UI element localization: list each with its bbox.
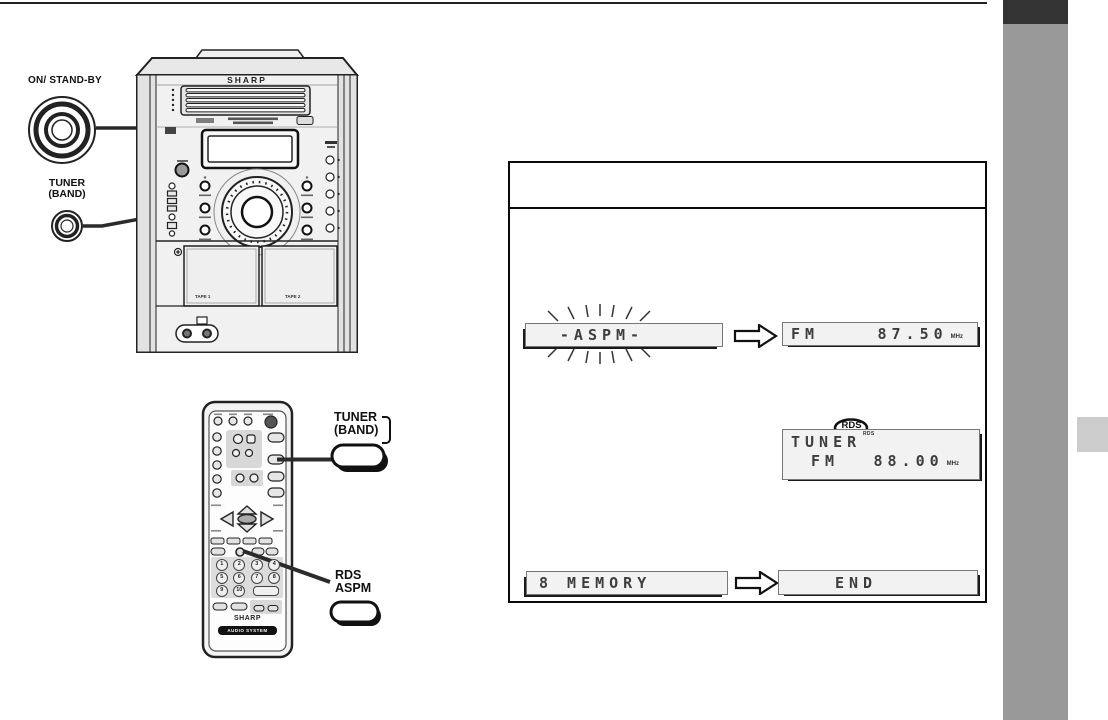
keypad-key: 6 — [233, 572, 245, 584]
keypad-key: 5 — [216, 572, 228, 584]
fm-band-text: FM — [791, 325, 819, 343]
jog-dial — [214, 169, 300, 255]
keypad-key: 9 — [216, 585, 228, 597]
instruction-box — [508, 161, 987, 603]
fm-unit-text: MHz — [951, 334, 963, 340]
instruction-box-divider — [508, 207, 987, 209]
remote-tuner-band-pill — [332, 445, 388, 472]
display-fm-start: FM 87.50 MHz — [782, 322, 978, 346]
keypad-key: 1 — [216, 559, 228, 571]
keypad-key: 10 — [233, 585, 245, 597]
display-end: END — [778, 570, 978, 595]
aspm-text: -ASPM- — [560, 326, 644, 344]
remote-rds-aspm-label: RDS ASPM — [335, 569, 371, 595]
step-arrow-icon — [733, 324, 779, 348]
remote-rds-aspm-pill — [331, 602, 381, 626]
rds-indicator: RDS — [863, 431, 874, 437]
step-arrow-icon — [734, 571, 780, 595]
display-aspm-flashing: -ASPM- — [525, 323, 723, 347]
remote-tuner-band-label: TUNER (BAND) — [334, 411, 378, 437]
tuner-band-callout-label: TUNER (BAND) — [36, 178, 98, 200]
keypad-plus-key — [253, 586, 279, 596]
power-button-illustration — [29, 97, 95, 163]
tuner-band-text: FM — [811, 452, 839, 470]
tuner-line1-text: TUNER — [783, 430, 979, 450]
tuner-band-callout-line2: (BAND) — [36, 189, 98, 200]
keypad-key: 7 — [251, 572, 263, 584]
tuner-unit-text: MHz — [947, 461, 959, 467]
fm-freq-text: 87.50 — [878, 325, 948, 343]
display-memory: 8 MEMORY — [526, 571, 728, 595]
tuner-band-button-illustration — [52, 211, 82, 241]
unit-power-button — [176, 164, 189, 177]
end-text: END — [835, 574, 877, 592]
power-callout-label: ON/ STAND-BY — [28, 75, 102, 86]
manual-page: ON/ STAND-BY TUNER (BAND) SHARP TAPE 1 T… — [0, 0, 1108, 720]
keypad-key: 8 — [268, 572, 280, 584]
unit-band-strip — [168, 183, 177, 236]
keypad-key: 4 — [268, 559, 280, 571]
tape2-label: TAPE 2 — [285, 294, 300, 299]
keypad-key: 2 — [233, 559, 245, 571]
unit-illustration — [137, 50, 357, 352]
remote-keypad: 1 2 3 4 5 6 7 8 9 10 — [213, 558, 283, 598]
unit-brand: SHARP — [156, 75, 338, 85]
display-tuner-rds: TUNER FM 88.00 MHz — [782, 429, 980, 480]
callout-bracket — [382, 416, 391, 444]
tuner-freq-text: 88.00 — [874, 452, 944, 470]
memory-text: 8 MEMORY — [539, 574, 651, 592]
keypad-key: 3 — [251, 559, 263, 571]
remote-rds-line2: ASPM — [335, 582, 371, 595]
tape1-label: TAPE 1 — [195, 294, 210, 299]
remote-tuner-band-line2: (BAND) — [334, 424, 378, 437]
remote-brand: SHARP — [203, 615, 292, 622]
remote-system-badge: AUDIO SYSTEM — [218, 626, 277, 635]
